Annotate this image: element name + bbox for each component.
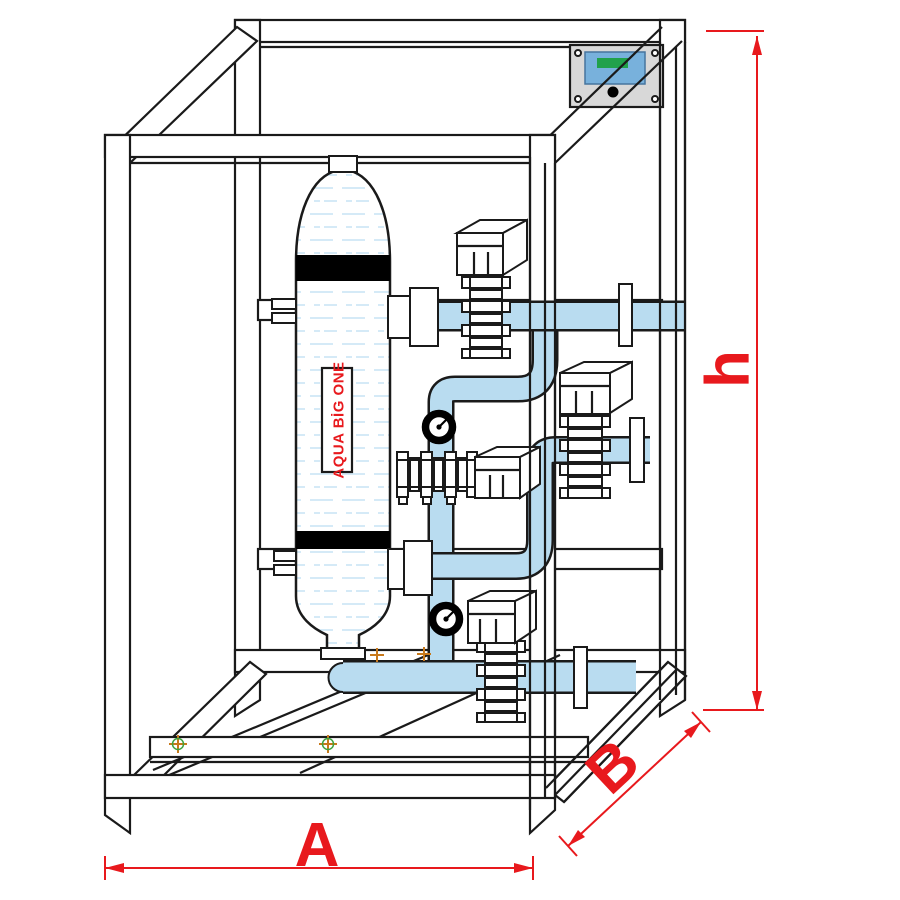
tank-band-upper [296,255,390,281]
actuated-valve-top [457,220,527,358]
tank-label: AQUA BİG ONE [330,361,347,478]
dimension-width-label: A [295,811,340,880]
pipe-flange [630,418,644,482]
technical-drawing: AQUA BİG ONE [0,0,900,900]
tank-left-port [274,551,296,561]
dimension-height-label: h [694,350,763,388]
control-panel [570,45,663,107]
frame-back-left-post [235,20,260,716]
frame-back-right-post [660,20,685,716]
tank-base-flange [321,648,365,659]
frame-base-beam-left [133,662,266,790]
tank-top-cap [329,156,357,172]
actuated-valve-right [560,362,632,498]
panel-button [608,87,619,98]
panel-screw-icon [652,96,658,102]
frame-shelf-rail [150,737,588,757]
tank-band-lower [296,531,390,549]
pressure-gauge [426,414,453,441]
filter-tank: AQUA BİG ONE [272,156,390,659]
frame-front-bottom-rail [105,775,555,798]
dimension-height: h [694,31,764,710]
frame-front-left-post [105,135,130,833]
drawing-canvas: AQUA BİG ONE [0,0,900,900]
panel-screw-icon [575,96,581,102]
tank-left-port [272,299,296,309]
pipe-flange [574,647,587,708]
pressure-gauge [433,606,460,633]
pipe-flange [619,284,632,346]
panel-screw-icon [652,50,658,56]
frame-back-top-rail [235,20,685,42]
dimension-width: A [105,811,533,880]
panel-screw-icon [575,50,581,56]
frame-front-top-rail [105,135,555,157]
actuated-valve-middle [397,447,540,504]
